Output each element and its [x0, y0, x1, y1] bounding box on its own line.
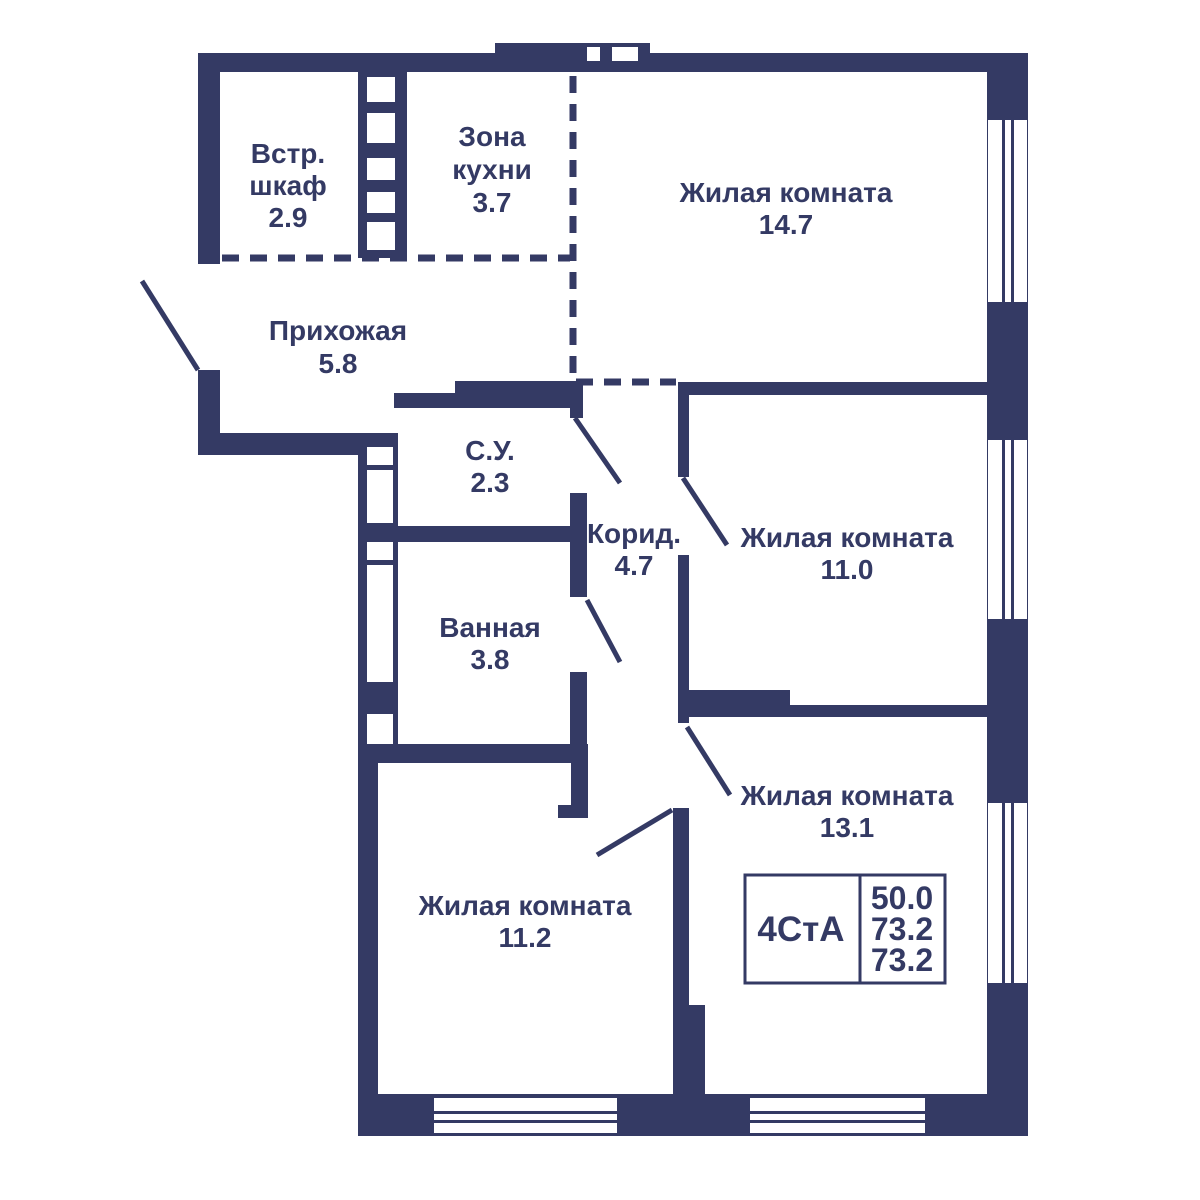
shaft-opening — [367, 714, 393, 744]
shaft-opening — [367, 565, 393, 682]
wall — [394, 393, 583, 408]
wall — [683, 690, 790, 705]
window-mullion — [1011, 440, 1014, 619]
room-label-wc: С.У. — [465, 435, 515, 466]
room-label-kitchen: Зона — [458, 121, 526, 152]
window-mullion — [1002, 120, 1005, 302]
shaft-opening — [367, 447, 393, 465]
room-area-corridor: 4.7 — [615, 550, 654, 581]
wall — [678, 705, 987, 717]
room-area-living1: 14.7 — [759, 209, 814, 240]
room-area-kitchen: 3.7 — [473, 187, 512, 218]
window — [434, 1098, 617, 1133]
room-label-wardrobe: шкаф — [249, 170, 326, 201]
top-wall-vent-slits — [587, 47, 638, 61]
window-mullion — [1011, 120, 1014, 302]
room-area-hallway: 5.8 — [319, 348, 358, 379]
wall — [358, 763, 378, 1094]
floor-plan: Встр. шкаф 2.9 Зона кухни 3.7 Жилая комн… — [0, 0, 1200, 1200]
window — [988, 440, 1027, 619]
window-mullion — [750, 1120, 925, 1123]
wall — [673, 808, 689, 1005]
shaft-opening — [367, 542, 393, 560]
window — [750, 1098, 925, 1133]
shaft-opening — [367, 222, 395, 250]
wall — [360, 744, 588, 763]
window-mullion — [1002, 440, 1005, 619]
window-mullion — [750, 1111, 925, 1114]
wall — [394, 526, 585, 542]
room-label-hallway: Прихожая — [269, 315, 407, 346]
room-area-wardrobe: 2.9 — [269, 202, 308, 233]
windows-right — [988, 120, 1027, 983]
unit-area-total2: 73.2 — [871, 942, 933, 978]
room-area-bathroom: 3.8 — [471, 644, 510, 675]
wall — [678, 382, 987, 395]
room-area-living3: 13.1 — [820, 812, 875, 843]
wall — [673, 1005, 705, 1094]
vent-slit — [612, 47, 638, 61]
window-mullion — [434, 1120, 617, 1123]
room-area-living2: 11.0 — [821, 554, 874, 585]
wall — [570, 408, 583, 418]
shaft-opening — [367, 113, 395, 143]
shaft-opening — [367, 77, 395, 102]
room-label-kitchen: кухни — [452, 154, 532, 185]
room-label-bathroom: Ванная — [439, 612, 541, 643]
unit-info-box: 4СтА 50.0 73.2 73.2 — [745, 875, 945, 983]
wall — [558, 805, 588, 818]
shaft-opening — [367, 470, 393, 523]
window-mullion — [1002, 803, 1005, 983]
room-label-living4: Жилая комната — [418, 890, 632, 921]
wall — [570, 493, 587, 597]
wall — [198, 53, 220, 264]
window — [988, 803, 1027, 983]
shaft-opening — [367, 158, 395, 180]
room-label-corridor: Корид. — [587, 518, 681, 549]
vent-slit — [587, 47, 600, 61]
shaft-opening — [367, 192, 395, 213]
wall — [678, 382, 689, 477]
room-area-wc: 2.3 — [471, 467, 510, 498]
room-label-living2: Жилая комната — [740, 522, 954, 553]
window-mullion — [1011, 803, 1014, 983]
window-mullion — [434, 1111, 617, 1114]
room-label-living1: Жилая комната — [679, 177, 893, 208]
unit-type-label: 4СтА — [757, 910, 844, 949]
room-label-living3: Жилая комната — [740, 780, 954, 811]
room-area-living4: 11.2 — [499, 922, 552, 953]
wall — [455, 381, 583, 393]
wall — [571, 763, 588, 805]
room-label-wardrobe: Встр. — [251, 138, 325, 169]
floor-plan-page: Встр. шкаф 2.9 Зона кухни 3.7 Жилая комн… — [0, 0, 1200, 1200]
window — [988, 120, 1027, 302]
